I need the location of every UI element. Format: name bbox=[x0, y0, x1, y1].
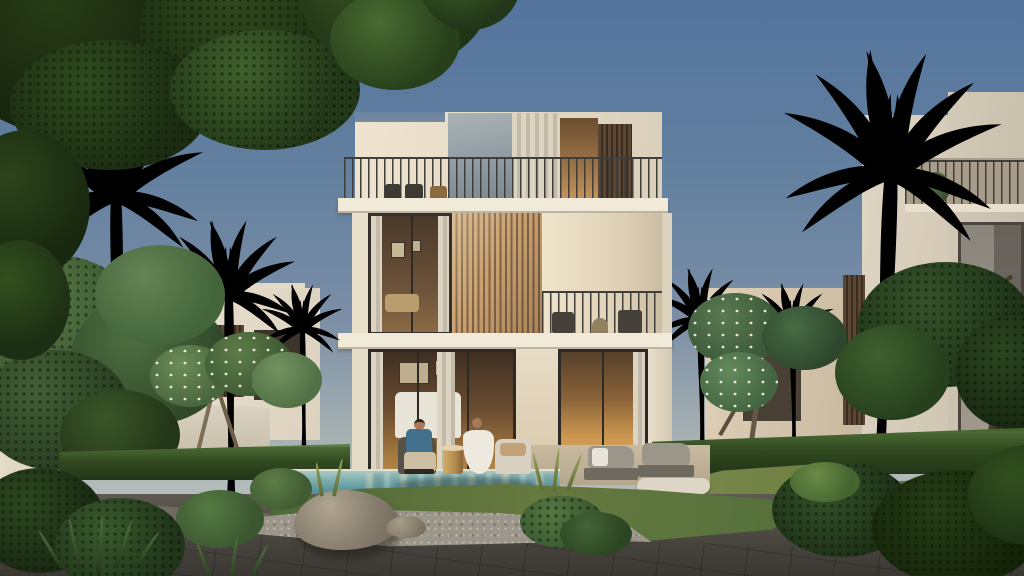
woman-dress bbox=[463, 430, 494, 474]
scene bbox=[0, 0, 1024, 576]
bush bbox=[250, 468, 312, 510]
bush bbox=[560, 512, 632, 556]
rock-large bbox=[294, 490, 398, 550]
man-shoes bbox=[404, 469, 434, 474]
bush bbox=[790, 462, 860, 502]
side-table-top bbox=[441, 445, 465, 451]
bush bbox=[176, 490, 264, 548]
woman-head bbox=[472, 418, 482, 428]
chair-cushion bbox=[500, 443, 526, 456]
rock-small bbox=[386, 516, 426, 538]
side-table bbox=[443, 448, 463, 474]
